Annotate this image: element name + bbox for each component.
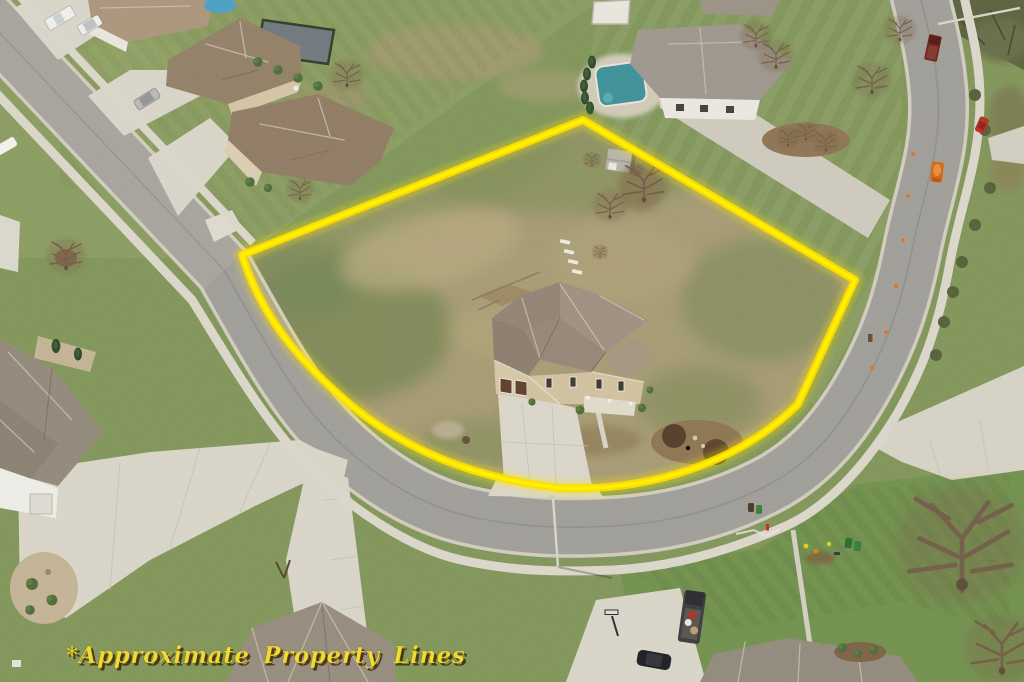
aerial-photo: *Approximate Property Lines *Approximate… — [0, 0, 1024, 682]
aerial-photo-canvas: *Approximate Property Lines *Approximate… — [0, 0, 1024, 682]
disclaimer-text: *Approximate Property Lines — [66, 642, 465, 669]
annotation: *Approximate Property Lines *Approximate… — [66, 642, 468, 672]
photo-grain — [0, 0, 1024, 682]
